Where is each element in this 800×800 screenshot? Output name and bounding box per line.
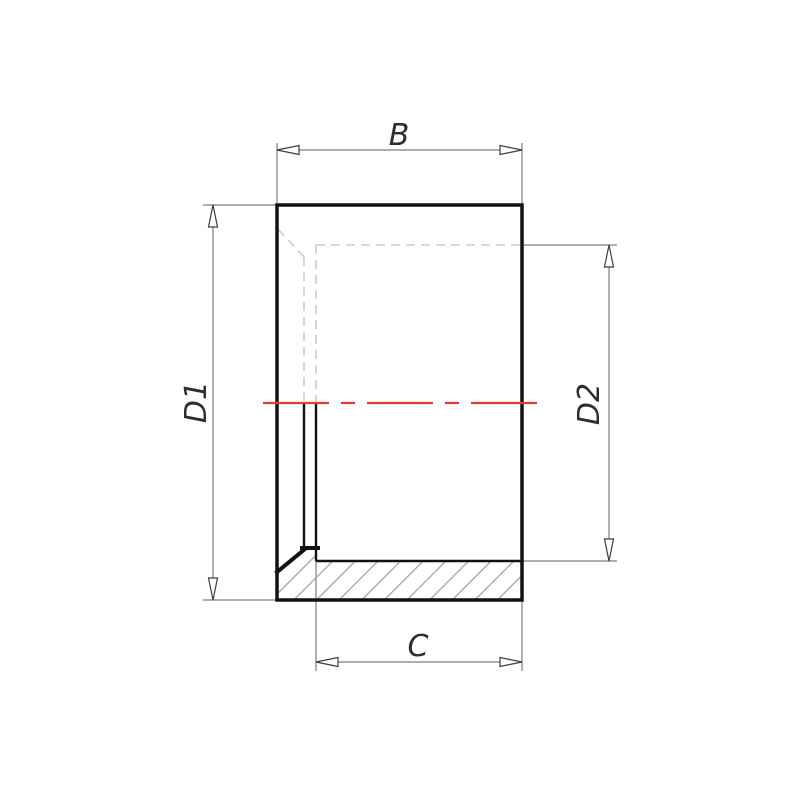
technical-drawing-svg: B D1 D2 C [0, 0, 800, 800]
hidden-chamfer-line [278, 229, 304, 257]
hidden-bore-lines [278, 229, 522, 402]
drawing-canvas: B D1 D2 C [0, 0, 800, 800]
dim-c-arrow-right [500, 658, 522, 667]
dim-c-arrow-left [316, 658, 338, 667]
dimension-b-group: B [277, 118, 522, 204]
dim-d1-arrow-top [209, 205, 218, 227]
dim-b-label: B [389, 118, 410, 153]
dim-c-label: C [408, 629, 429, 664]
dim-d2-label: D2 [572, 383, 607, 425]
dim-d1-label: D1 [179, 381, 214, 423]
section-bore-lines [277, 403, 522, 572]
dim-b-arrow-left [277, 146, 299, 155]
dim-b-arrow-right [500, 146, 522, 155]
dim-d2-arrow-top [605, 245, 614, 267]
dim-d1-arrow-bottom [209, 578, 218, 600]
section-hatch-region [277, 549, 522, 599]
dimension-d1-group: D1 [179, 205, 277, 600]
dim-d2-arrow-bottom [605, 539, 614, 561]
